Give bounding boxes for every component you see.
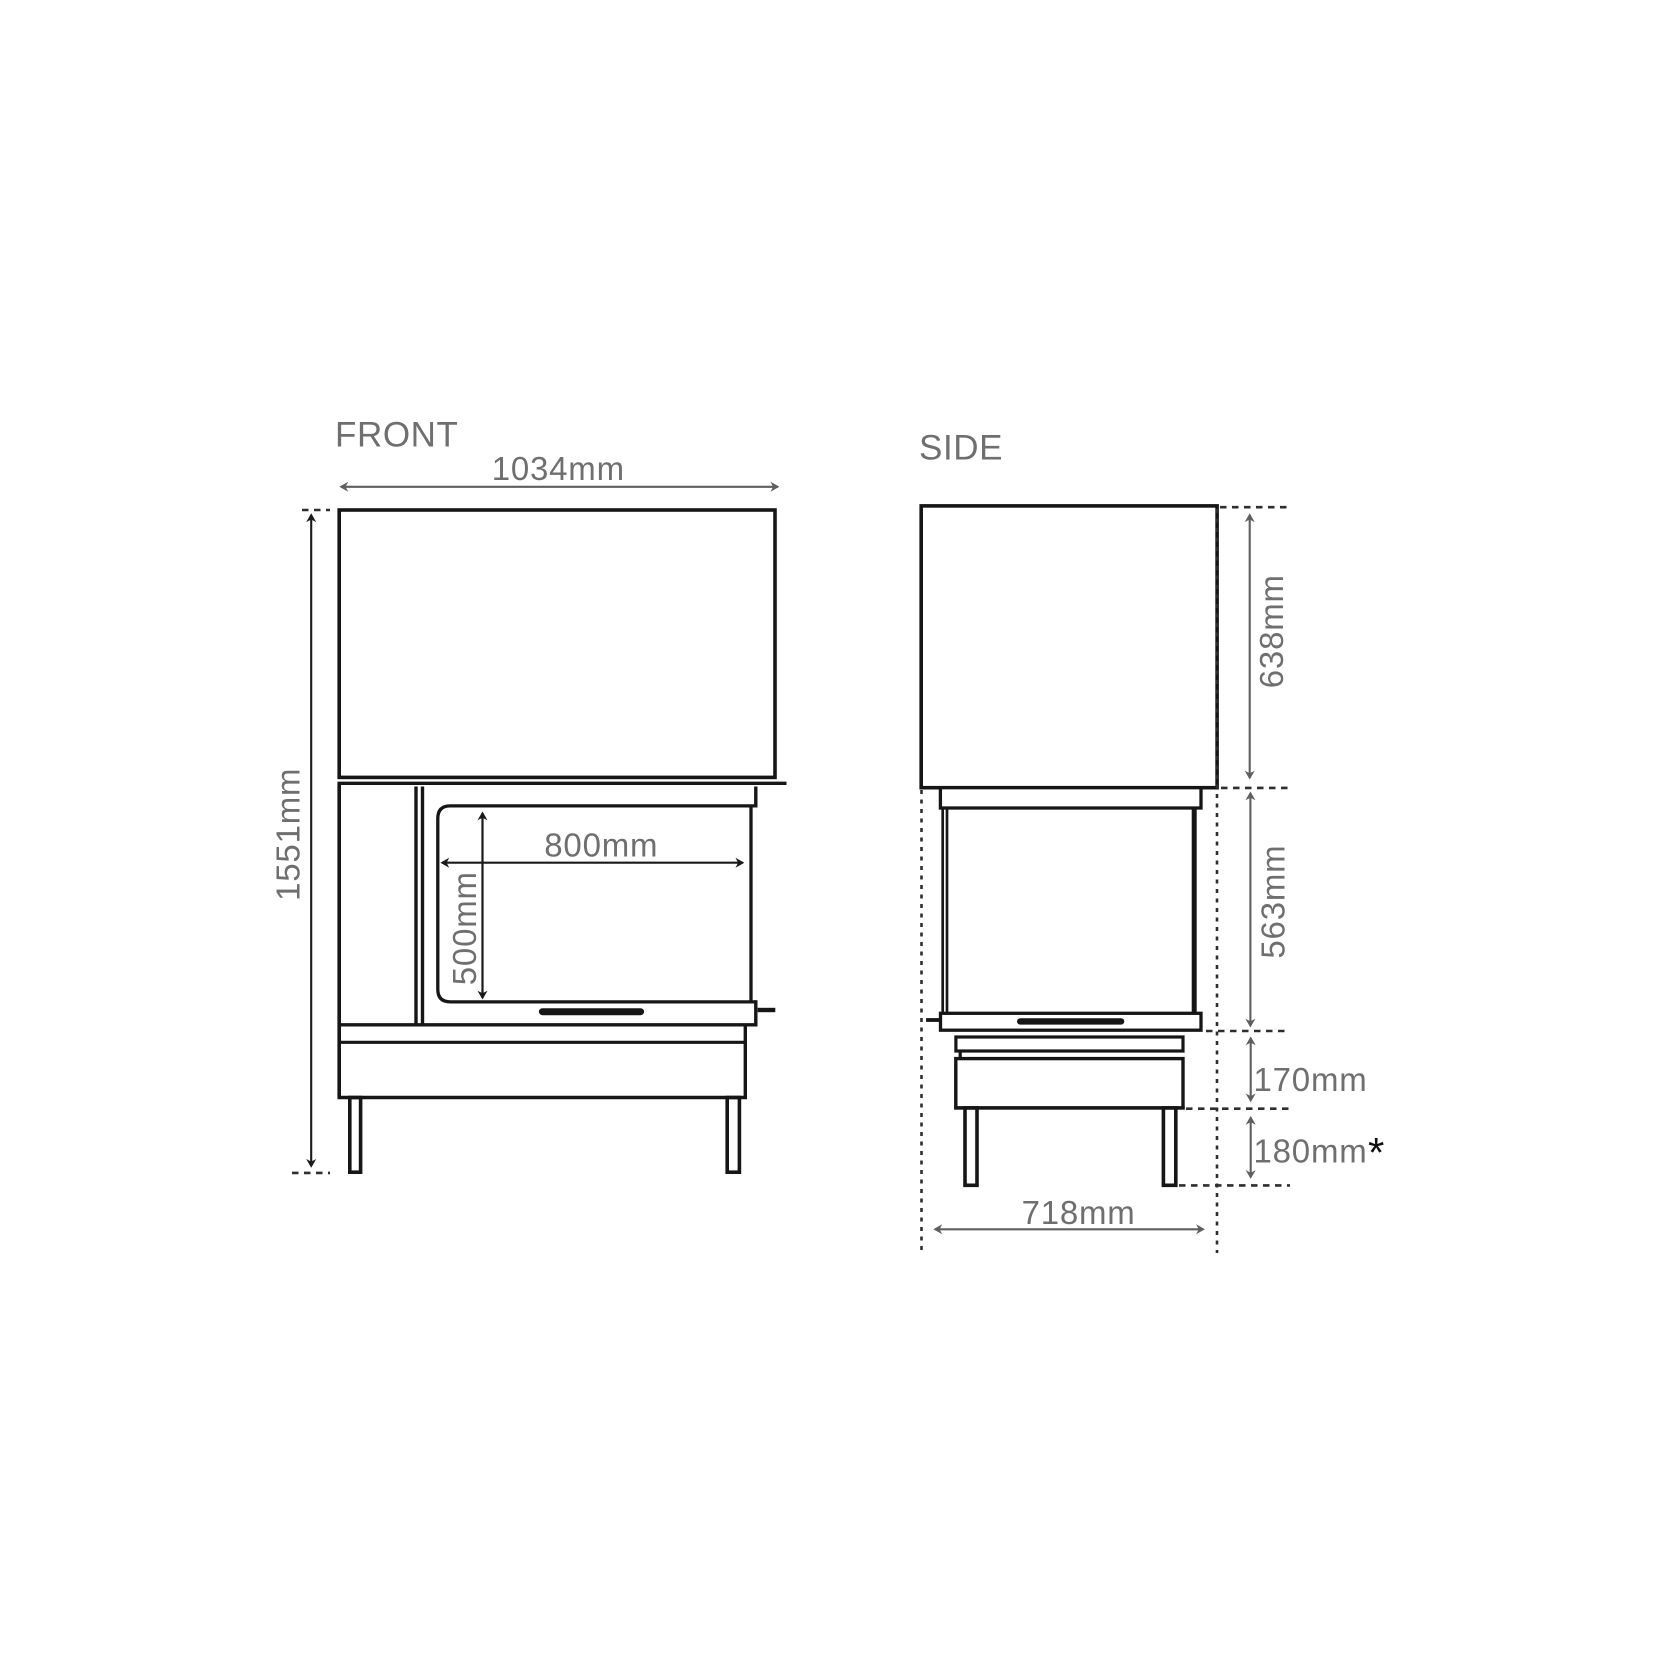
svg-text:1034mm: 1034mm (492, 450, 625, 487)
svg-text:170mm: 170mm (1254, 1061, 1368, 1098)
svg-text:SIDE: SIDE (919, 428, 1003, 467)
svg-text:180mm: 180mm (1254, 1133, 1368, 1170)
svg-text:FRONT: FRONT (335, 416, 459, 455)
svg-text:563mm: 563mm (1254, 845, 1291, 959)
svg-text:718mm: 718mm (1022, 1194, 1136, 1231)
svg-text:638mm: 638mm (1253, 574, 1290, 688)
svg-text:*: * (1368, 1129, 1384, 1176)
svg-text:1551mm: 1551mm (269, 768, 306, 901)
svg-text:800mm: 800mm (544, 826, 658, 863)
svg-text:500mm: 500mm (446, 871, 483, 985)
